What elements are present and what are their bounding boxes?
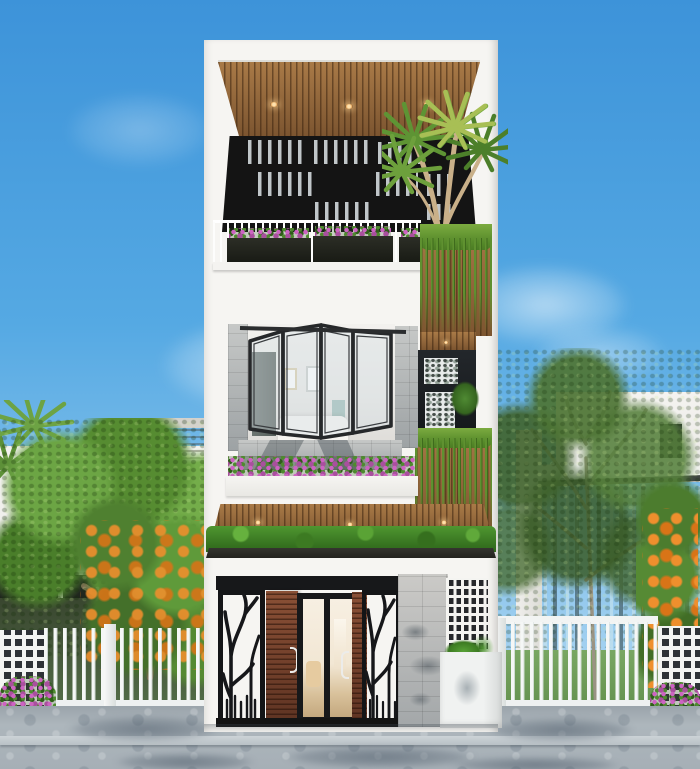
balcony-planter (313, 236, 393, 262)
balcony-railing (213, 220, 421, 270)
railing-base (213, 262, 425, 270)
folding-window-panels (228, 316, 418, 451)
right-fence (492, 622, 658, 706)
door-handle (341, 651, 349, 679)
window-planter-flowers (228, 456, 416, 478)
tree-shadow (90, 750, 280, 769)
branch-gate-left (218, 590, 265, 722)
roof-downlight (270, 102, 278, 107)
main-building (204, 40, 498, 732)
interior-furniture-glimpse (306, 661, 321, 687)
pergola-louver-group (315, 202, 371, 220)
branch-gate-right (362, 590, 400, 722)
hedge-planter-ledge (206, 548, 496, 558)
niche-downlight (444, 341, 449, 344)
roof-downlight (345, 104, 353, 109)
vine-panel-upper-wood (420, 224, 492, 336)
glass-entry-door (297, 593, 359, 725)
architectural-render (0, 0, 700, 769)
niche-plant (448, 378, 482, 430)
left-fence (44, 628, 206, 708)
pergola-louver-group (248, 140, 306, 164)
glass-door-pane (303, 599, 324, 717)
white-planter-box (440, 652, 502, 728)
left-fence-post (104, 624, 116, 712)
pergola-louver-group (258, 172, 316, 196)
wood-door-left (266, 591, 298, 725)
canopy-downlight (441, 521, 447, 525)
tree-shadow (420, 754, 650, 769)
planter-leaf-shadow (450, 666, 484, 710)
folding-window-bay (228, 316, 418, 451)
window-planter-ledge (226, 476, 418, 496)
building-ground-shadow (204, 724, 498, 732)
pergola-louver-group (314, 140, 370, 164)
entrance-header-beam (216, 576, 400, 590)
balcony-planter (227, 238, 311, 262)
canopy-downlight (255, 521, 261, 525)
vine-panel-upper-strands (420, 238, 492, 336)
